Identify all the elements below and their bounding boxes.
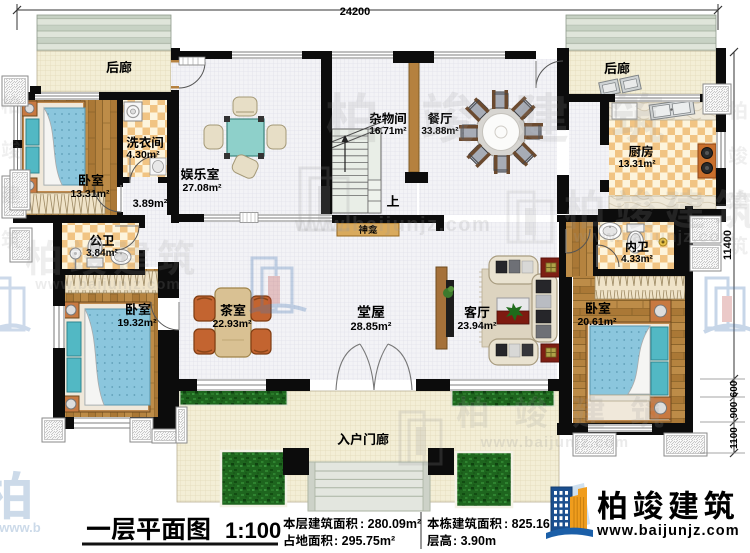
svg-text:27.08m²: 27.08m² (182, 182, 222, 194)
svg-text:20.61m²: 20.61m² (577, 316, 617, 328)
svg-text:www.b: www.b (0, 520, 41, 535)
svg-text:3.89m²: 3.89m² (133, 198, 168, 210)
svg-text:28.85m²: 28.85m² (351, 321, 392, 333)
svg-text:13.31m²: 13.31m² (618, 159, 656, 170)
svg-text:19.32m²: 19.32m² (117, 317, 157, 329)
svg-text:www.baijunjz.com: www.baijunjz.com (596, 523, 740, 539)
svg-text:www.baijunjz.com: www.baijunjz.com (480, 434, 630, 451)
svg-text:: 3.90m: : 3.90m (453, 534, 496, 548)
svg-text:www.baijunjz.com: www.baijunjz.com (573, 227, 737, 246)
svg-text:1100: 1100 (729, 427, 740, 449)
svg-text:: 295.75m²: : 295.75m² (334, 534, 395, 548)
svg-text:23.94m²: 23.94m² (457, 320, 497, 332)
svg-text:22.93m²: 22.93m² (212, 318, 252, 330)
svg-text:www.baijunjz.com: www.baijunjz.com (34, 276, 180, 293)
svg-text:600: 600 (729, 380, 740, 397)
svg-text:4.30m²: 4.30m² (126, 149, 160, 161)
svg-text:4.33m²: 4.33m² (621, 254, 653, 265)
svg-text:24200: 24200 (340, 6, 371, 18)
svg-text:900: 900 (729, 401, 740, 418)
svg-text:13.31m²: 13.31m² (70, 188, 110, 200)
svg-text:: 280.09m²: : 280.09m² (360, 517, 421, 531)
svg-text:1:100: 1:100 (225, 518, 281, 543)
